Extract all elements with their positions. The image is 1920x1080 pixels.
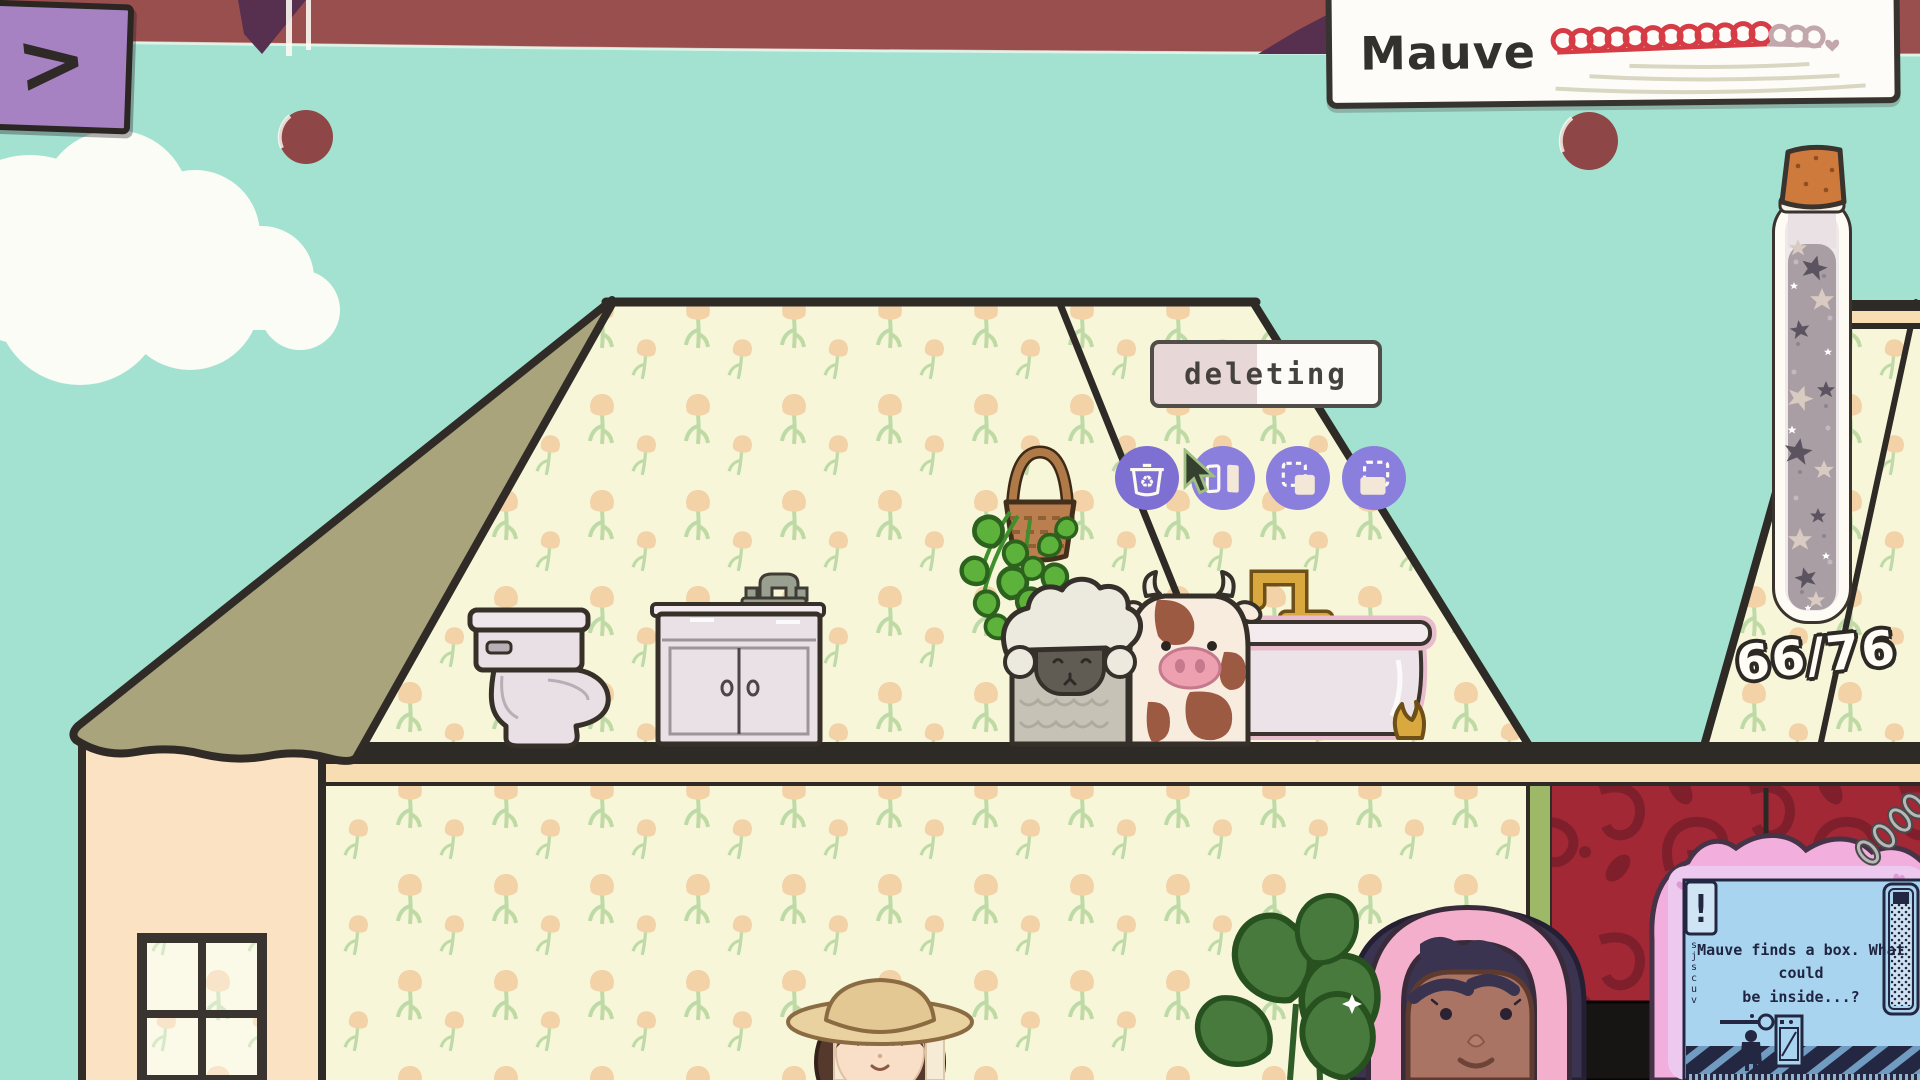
dialog-line-1: Mauve finds a box. What could [1694, 939, 1908, 986]
sign-progress-squiggle [1539, 11, 1888, 101]
tool-tooltip: deleting [1150, 340, 1382, 408]
window[interactable] [142, 938, 262, 1080]
dialog-line-2: be inside...? [1694, 986, 1908, 1009]
back-chevron-icon: > [12, 16, 91, 107]
duplicate-icon [1353, 457, 1395, 499]
duplicate-button[interactable] [1342, 446, 1406, 510]
copy-icon [1277, 457, 1319, 499]
svg-text:!: ! [1690, 887, 1713, 931]
back-button[interactable]: > [0, 0, 134, 135]
star-jar[interactable] [1774, 147, 1850, 622]
delete-button[interactable]: ♻ [1115, 446, 1179, 510]
copy-button[interactable] [1266, 446, 1330, 510]
scene-illustration: ♥ ♥ ! s j s c u v [0, 0, 1920, 1080]
game-stage: ♥ ♥ ! s j s c u v [0, 0, 1920, 1080]
recycle-bin-icon: ♻ [1126, 457, 1168, 499]
location-name: Mauve [1360, 25, 1536, 81]
chalk-fruit-right[interactable] [1560, 112, 1618, 170]
squiggle-heart-icon [1825, 40, 1839, 52]
alert-badge: ! [1686, 882, 1716, 934]
tooltip-label: deleting [1184, 357, 1348, 391]
chalk-fruit-left[interactable] [279, 110, 333, 164]
mouse-cursor [1183, 448, 1227, 496]
device-dialog: Mauve finds a box. What could be inside.… [1694, 939, 1908, 1009]
location-sign: Mauve [1325, 0, 1900, 109]
svg-text:♻: ♻ [1139, 471, 1154, 491]
mauve-character[interactable] [1352, 912, 1584, 1080]
